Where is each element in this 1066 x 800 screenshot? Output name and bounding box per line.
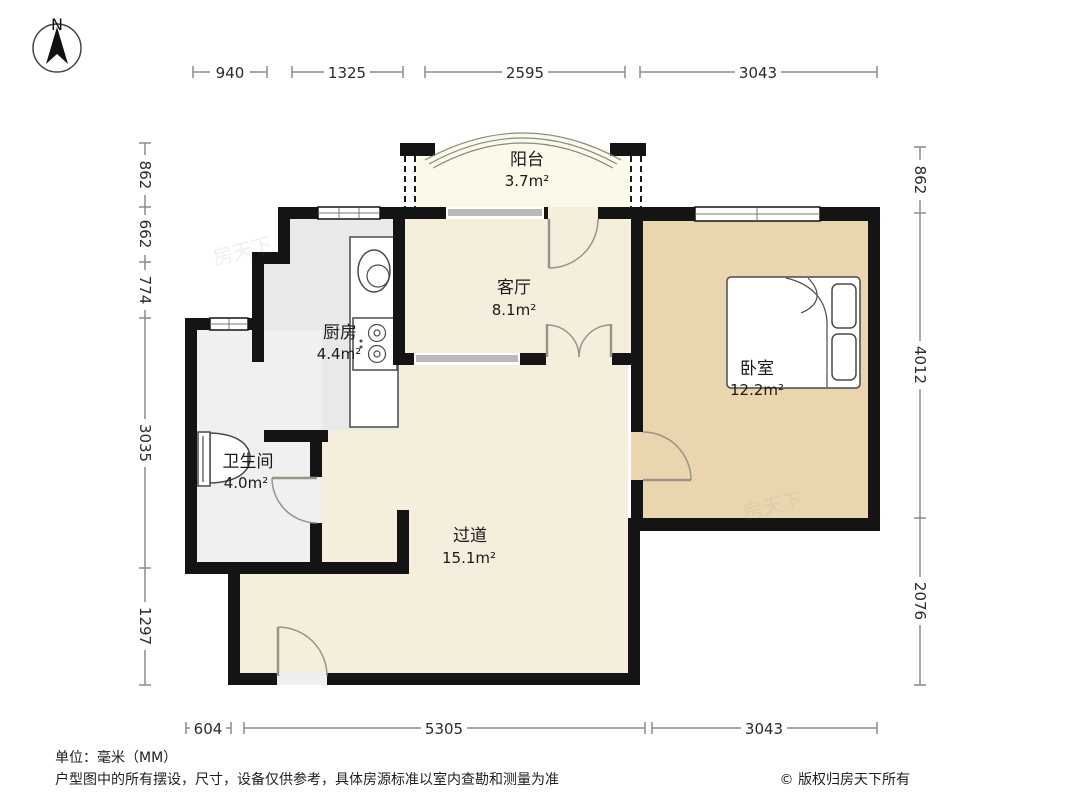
kitchen-area: 4.4m² bbox=[317, 345, 361, 363]
dimensions-left: 862 662 774 3035 1297 bbox=[136, 143, 154, 685]
living-pass-through bbox=[416, 355, 518, 362]
balcony-label: 阳台 bbox=[510, 150, 544, 170]
wall-kitchen-right bbox=[393, 219, 405, 365]
bathroom-label: 卫生间 bbox=[223, 452, 274, 472]
bed-pillow-1 bbox=[832, 284, 856, 328]
wall-west bbox=[185, 318, 197, 568]
wall-southwest-step bbox=[228, 562, 240, 685]
dim-left-0: 862 bbox=[136, 161, 154, 190]
balcony-floor bbox=[410, 134, 636, 207]
dim-top-0: 940 bbox=[216, 64, 245, 82]
toilet-tank bbox=[198, 432, 210, 486]
dim-bottom-2: 3043 bbox=[745, 720, 783, 738]
compass-north-label: N bbox=[51, 15, 63, 34]
dimensions-right: 862 4012 2076 bbox=[911, 147, 929, 685]
kitchen-label: 厨房 bbox=[323, 323, 357, 343]
living-room-area: 8.1m² bbox=[492, 301, 536, 319]
bathroom-area: 4.0m² bbox=[224, 474, 268, 492]
dim-bottom-1: 5305 bbox=[425, 720, 463, 738]
balcony-post-left bbox=[400, 143, 435, 156]
dimensions-top: 940 1325 2595 3043 bbox=[193, 64, 877, 82]
living-room-label: 客厅 bbox=[497, 278, 531, 298]
balcony-area: 3.7m² bbox=[505, 172, 549, 190]
dim-left-2: 774 bbox=[136, 276, 154, 305]
wall-bedroom-west-lower bbox=[631, 480, 643, 530]
dim-left-3: 3035 bbox=[136, 424, 154, 462]
bedroom-area: 12.2m² bbox=[730, 381, 784, 399]
wall-corridor-stub bbox=[397, 510, 409, 574]
dim-left-1: 662 bbox=[136, 220, 154, 249]
bed-pillow-2 bbox=[832, 334, 856, 380]
wall-bathroom-right-lower bbox=[310, 523, 322, 568]
dim-top-3: 3043 bbox=[739, 64, 777, 82]
hallway-area: 15.1m² bbox=[442, 549, 496, 567]
hallway-label: 过道 bbox=[453, 526, 487, 546]
kitchen-window bbox=[318, 207, 380, 219]
wall-hallway-east bbox=[628, 518, 640, 685]
disclaimer: 户型图中的所有摆设，尺寸，设备仅供参考，具体房源标准以室内查勘和测量为准 bbox=[55, 771, 559, 788]
dim-right-0: 862 bbox=[911, 166, 929, 195]
dim-right-2: 2076 bbox=[911, 582, 929, 620]
dimensions-bottom: 604 5305 3043 bbox=[186, 720, 877, 738]
wall-bathroom-right-upper bbox=[310, 430, 322, 477]
compass: N bbox=[33, 15, 81, 72]
copyright: © 版权归房天下所有 bbox=[780, 771, 910, 788]
footer: 单位：毫米（MM） 户型图中的所有摆设，尺寸，设备仅供参考，具体房源标准以室内查… bbox=[55, 749, 910, 788]
dim-bottom-0: 604 bbox=[194, 720, 223, 738]
balcony-sliding-window bbox=[448, 209, 542, 216]
wall-step-vertical bbox=[252, 252, 264, 362]
bedroom-label: 卧室 bbox=[740, 359, 774, 379]
floorplan-page: 房天下 房天下 阳台 3.7m² 客厅 8.1m² 厨房 4.4m² 卫生间 4… bbox=[0, 0, 1066, 800]
hallway-floor-left bbox=[240, 574, 322, 673]
bathroom-window bbox=[210, 318, 248, 330]
dim-top-2: 2595 bbox=[506, 64, 544, 82]
wall-bathroom-bottom bbox=[185, 562, 409, 574]
balcony-post-right bbox=[610, 143, 646, 156]
wall-east bbox=[868, 207, 880, 531]
bedroom-window bbox=[695, 207, 820, 221]
dim-top-1: 1325 bbox=[328, 64, 366, 82]
floorplan-canvas: 房天下 房天下 阳台 3.7m² 客厅 8.1m² 厨房 4.4m² 卫生间 4… bbox=[0, 0, 1066, 800]
unit-note: 单位：毫米（MM） bbox=[55, 749, 177, 766]
dim-right-1: 4012 bbox=[911, 346, 929, 384]
wall-bedroom-west-upper bbox=[631, 219, 643, 432]
dim-left-4: 1297 bbox=[136, 607, 154, 645]
